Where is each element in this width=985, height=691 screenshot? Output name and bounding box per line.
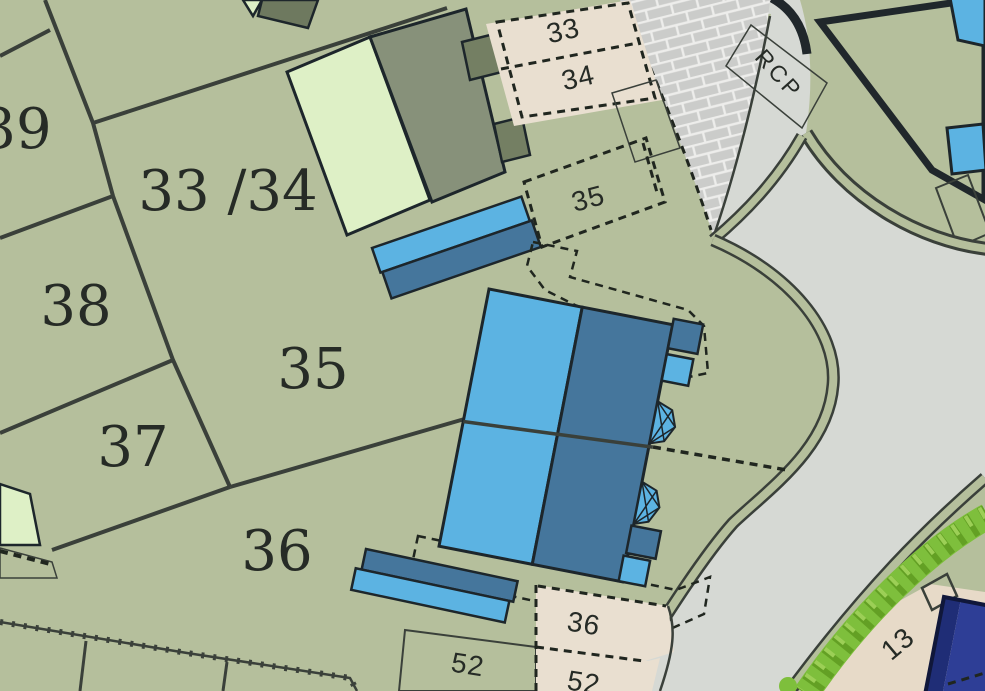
plot-label-35: 35 [277,337,348,402]
parcel-label-36: 36 [565,606,603,642]
parcel-label-52a: 52 [449,647,487,683]
plot-label-3334: 33 /34 [138,159,317,224]
plot-label-36: 36 [241,519,312,584]
house-rear-wing-a [668,319,703,354]
plot-label-39: 39 [0,97,52,162]
house-rear-wing-d [619,556,650,587]
house-rear-wing-c [626,526,661,559]
parcel-label-52b: 52 [565,665,603,691]
plot-label-38: 38 [40,274,111,339]
house-rear-wing-b [662,354,694,386]
site-plan-viewport: 13 RCP 33 34 35 [0,0,985,691]
building-top-right-annex [947,124,985,174]
site-plan-canvas: 13 RCP 33 34 35 [0,0,985,691]
plot-label-37: 37 [97,415,168,480]
